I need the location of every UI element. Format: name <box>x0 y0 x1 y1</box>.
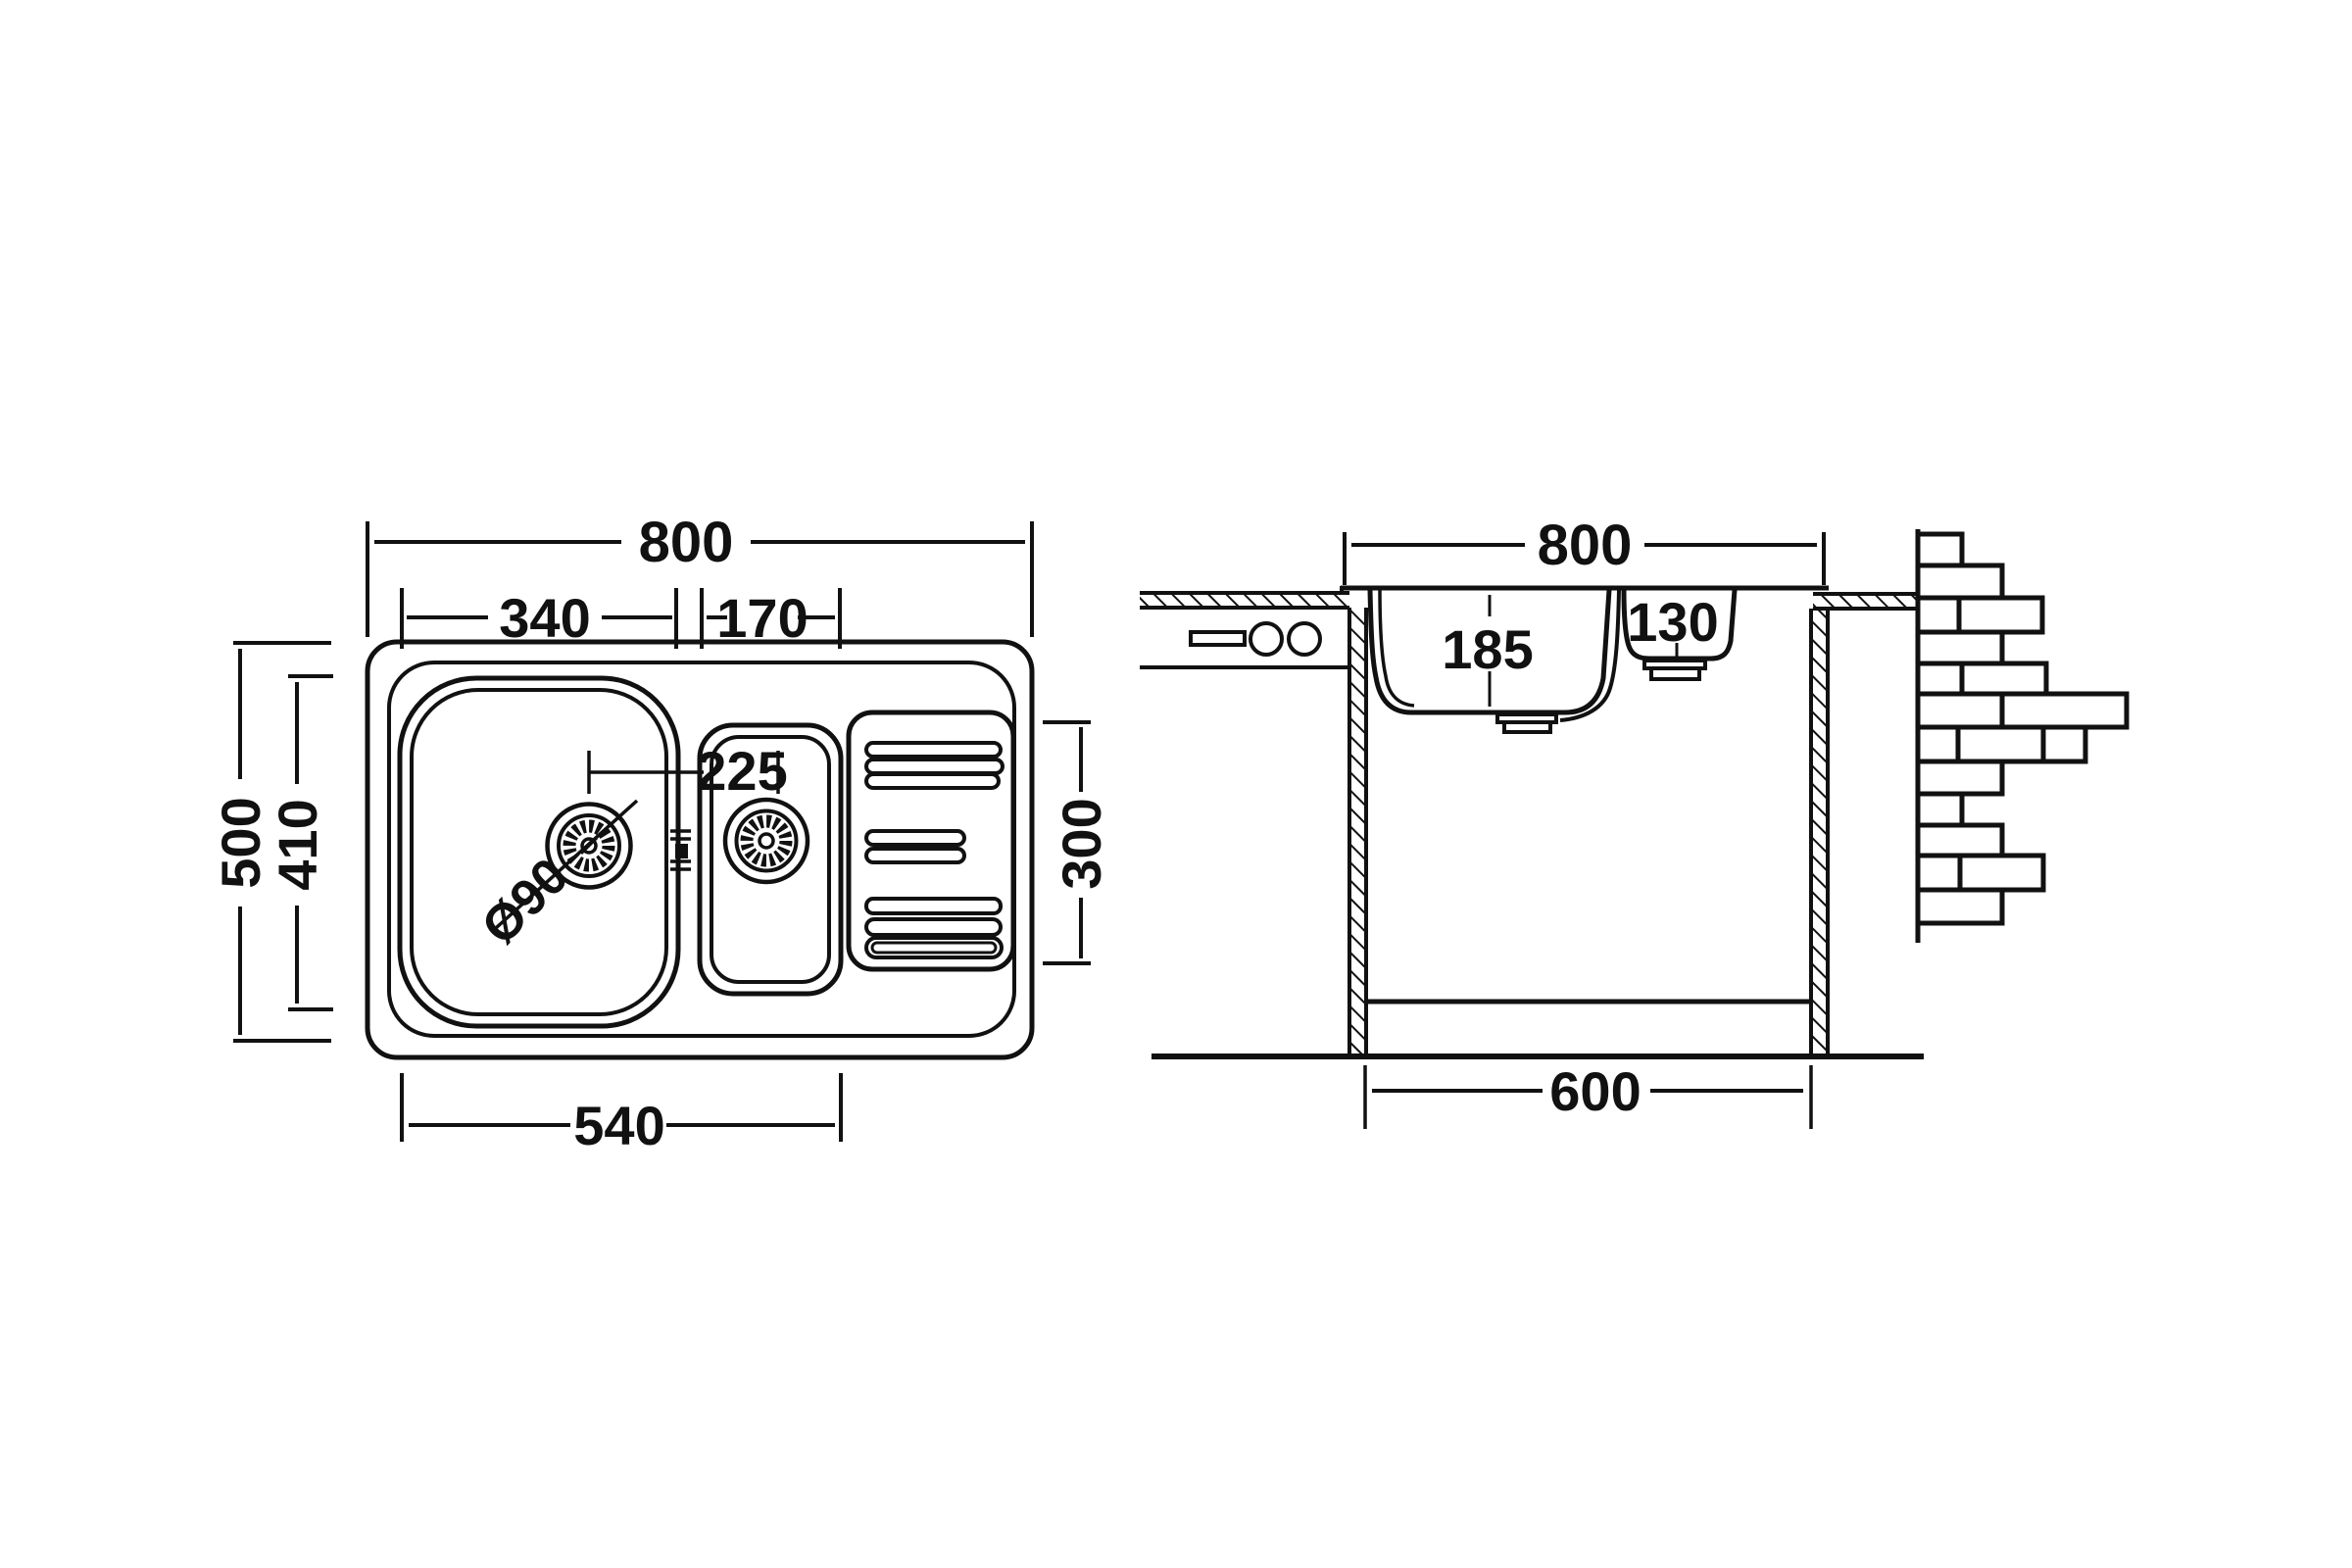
dim-label-small-bowl-depth: 130 <box>1627 591 1718 653</box>
dim-section-overall-width: 800 <box>1345 514 1824 585</box>
section-view: 800 185 130 600 <box>1140 514 2127 1129</box>
brick <box>1918 825 2002 856</box>
dim-label-drainer-length: 300 <box>1051 798 1112 889</box>
dim-label-small-bowl-width: 170 <box>716 587 808 649</box>
drain-center <box>759 834 773 848</box>
dim-label-overall-depth: 500 <box>210 797 271 888</box>
groove-slot <box>866 919 1001 935</box>
dishwasher-knob <box>1289 623 1320 655</box>
dim-drainer-length: 300 <box>1043 722 1112 963</box>
dishwasher-handle-slot <box>1191 632 1245 645</box>
brick <box>1918 856 1960 890</box>
drainboard-outline <box>849 712 1013 969</box>
groove-slot <box>866 899 1001 913</box>
drainboard-grooves <box>866 743 1003 957</box>
brick-wall <box>1918 529 2127 943</box>
brick <box>1918 694 2002 727</box>
small-drain <box>725 800 808 882</box>
dishwasher-front <box>1140 623 1349 667</box>
brick <box>1918 890 2002 923</box>
counter-hatch <box>1140 593 1349 608</box>
brick <box>1962 663 2046 694</box>
countertop-right <box>1813 594 1917 609</box>
brick <box>1918 727 1958 761</box>
counter-hatch <box>1813 594 1917 609</box>
dim-main-bowl-depth: 185 <box>1442 595 1533 707</box>
sink-technical-drawing: Ø90 225 800 340 <box>0 0 2352 1568</box>
dim-label-drain-offset: 225 <box>696 740 787 802</box>
brick <box>1918 794 1962 825</box>
dim-label-section-overall-width: 800 <box>1538 514 1633 577</box>
brick <box>1918 534 1962 565</box>
small-drain-fitting <box>1644 661 1705 679</box>
dim-cabinet-width: 600 <box>1365 1060 1811 1129</box>
brick <box>1918 663 1962 694</box>
dishwasher-knob <box>1250 623 1282 655</box>
brick <box>1918 632 2002 663</box>
drain-body <box>1504 722 1550 732</box>
drain-body <box>1651 668 1699 679</box>
brick <box>2002 694 2127 727</box>
brick <box>1958 727 2043 761</box>
brick <box>1918 761 2002 794</box>
cabinet-left-wall <box>1349 608 1366 1056</box>
groove-slot <box>866 938 1002 957</box>
dim-drain-offset: 225 <box>589 740 788 802</box>
groove-slot <box>866 774 999 788</box>
dim-label-plan-overall-width: 800 <box>639 511 734 574</box>
drain-strainer-spokes <box>747 821 786 860</box>
groove-slot <box>866 743 1001 757</box>
dim-label-main-bowl-depth: 185 <box>1442 618 1533 680</box>
dim-label-bowl-length: 410 <box>267 799 328 890</box>
main-bowl-wall-inner-line <box>1380 590 1414 706</box>
brick <box>1918 565 2002 598</box>
groove-slot <box>866 849 964 862</box>
main-drain-fitting <box>1497 714 1556 732</box>
dim-small-bowl-depth: 130 <box>1627 591 1718 657</box>
dim-bowl-length: 410 <box>267 676 333 1009</box>
groove-slot-inner <box>872 943 996 953</box>
groove-slot <box>866 831 964 845</box>
plan-view: Ø90 225 800 340 <box>210 511 1112 1156</box>
dim-bowl-zone-width: 540 <box>402 1073 841 1156</box>
brick <box>1959 598 2042 632</box>
clip-body <box>675 844 688 858</box>
cabinet-right-wall <box>1811 609 1828 1056</box>
wall-hatch <box>1349 608 1366 1056</box>
dim-label-main-bowl-width: 340 <box>499 587 590 649</box>
drawing-canvas: Ø90 225 800 340 <box>0 0 2352 1568</box>
dim-label-cabinet-width: 600 <box>1549 1060 1641 1122</box>
groove-slot <box>866 759 1003 773</box>
wall-hatch <box>1811 609 1828 1056</box>
brick <box>1960 856 2043 890</box>
dim-label-bowl-zone-width: 540 <box>573 1095 664 1156</box>
brick <box>1918 598 1959 632</box>
brick <box>2043 727 2085 761</box>
countertop-left <box>1140 593 1349 608</box>
